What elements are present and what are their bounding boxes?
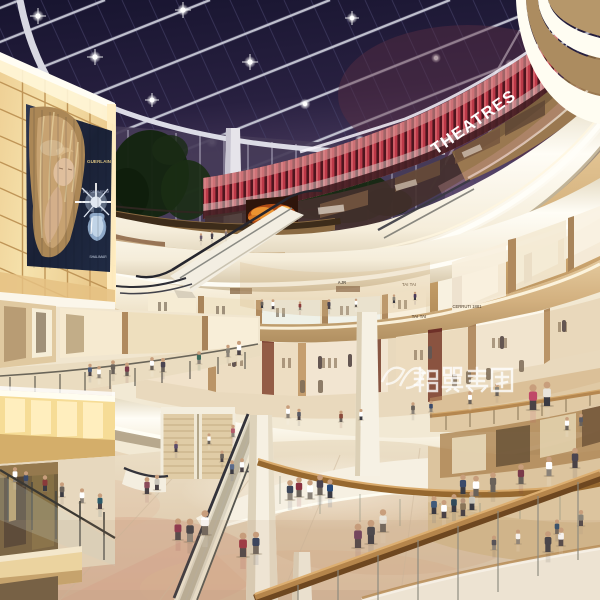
svg-text:GUERLAIN: GUERLAIN [87,159,112,164]
svg-text:EAU DE PARFUM: EAU DE PARFUM [83,190,109,194]
svg-text:CERRUTI 1881: CERRUTI 1881 [452,304,482,309]
svg-text:TAI TAI: TAI TAI [412,314,427,319]
